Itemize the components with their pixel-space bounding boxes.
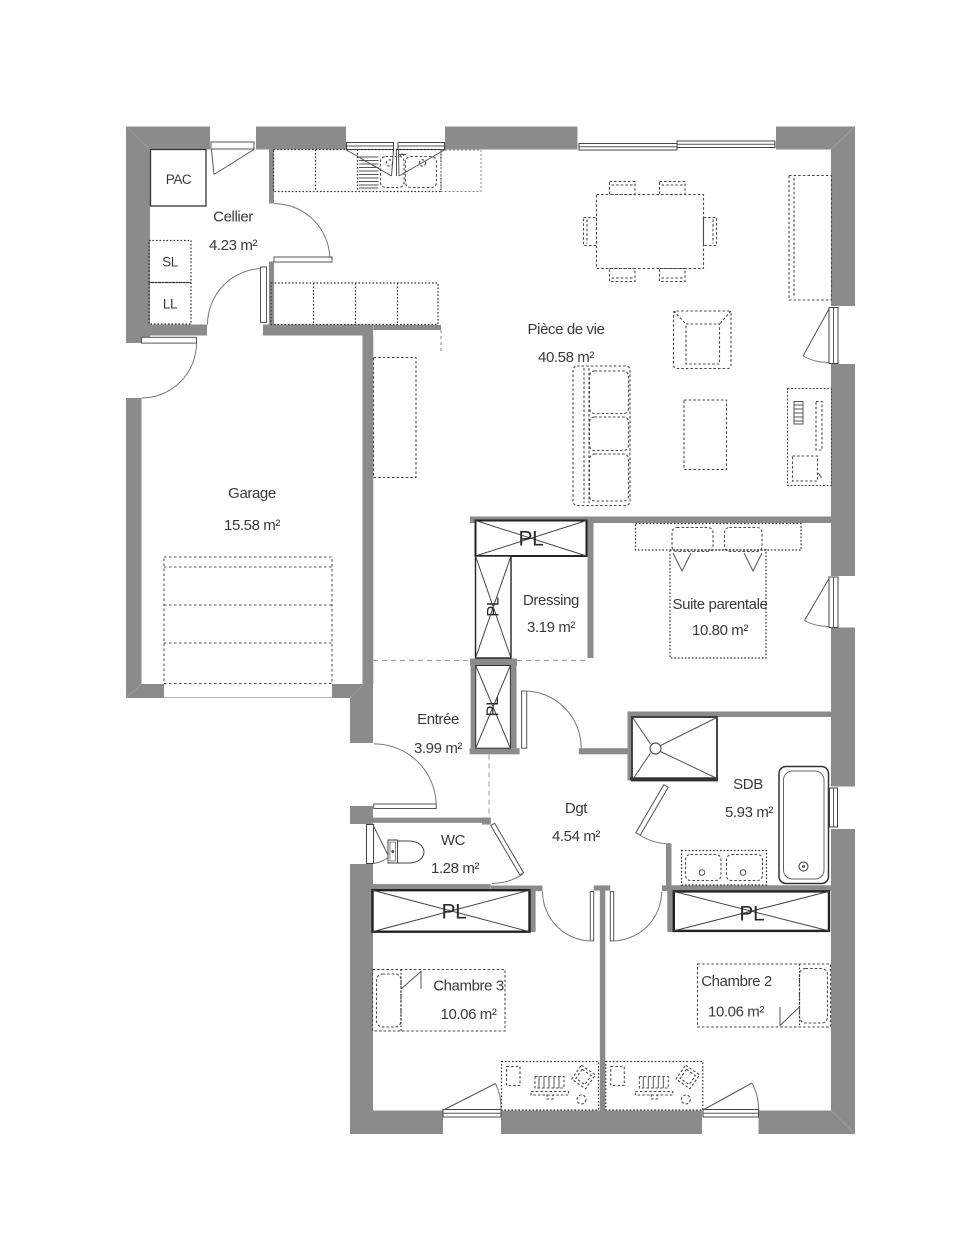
- svg-text:Chambre 3: Chambre 3: [433, 978, 504, 995]
- svg-text:4.54 m²: 4.54 m²: [552, 828, 600, 845]
- svg-text:Cellier: Cellier: [213, 209, 253, 226]
- svg-text:Suite parentale: Suite parentale: [673, 596, 768, 613]
- svg-text:PL: PL: [484, 697, 502, 717]
- svg-text:5.93 m²: 5.93 m²: [725, 804, 773, 821]
- svg-text:SL: SL: [162, 255, 179, 270]
- svg-text:PL: PL: [485, 597, 503, 617]
- svg-text:PAC: PAC: [166, 172, 192, 187]
- svg-text:Dressing: Dressing: [523, 592, 579, 609]
- svg-text:3.19 m²: 3.19 m²: [527, 619, 575, 636]
- svg-text:15.58 m²: 15.58 m²: [224, 517, 280, 534]
- svg-text:40.58 m²: 40.58 m²: [538, 349, 594, 366]
- svg-text:3.99 m²: 3.99 m²: [414, 740, 462, 757]
- svg-text:10.80 m²: 10.80 m²: [692, 622, 748, 639]
- svg-text:1.28 m²: 1.28 m²: [431, 860, 479, 877]
- svg-text:Entrée: Entrée: [417, 711, 459, 728]
- svg-text:SDB: SDB: [733, 776, 763, 793]
- svg-text:10.06 m²: 10.06 m²: [708, 1004, 764, 1021]
- svg-text:PL: PL: [442, 901, 467, 924]
- svg-text:Garage: Garage: [228, 485, 276, 502]
- svg-text:PL: PL: [519, 528, 544, 551]
- svg-text:Pièce de vie: Pièce de vie: [528, 321, 605, 338]
- svg-text:PL: PL: [739, 902, 764, 925]
- svg-text:Dgt: Dgt: [565, 800, 588, 817]
- svg-text:LL: LL: [163, 297, 178, 312]
- svg-text:4.23 m²: 4.23 m²: [209, 237, 257, 254]
- svg-text:WC: WC: [441, 832, 466, 849]
- svg-text:10.06 m²: 10.06 m²: [441, 1006, 497, 1023]
- svg-text:Chambre 2: Chambre 2: [701, 973, 772, 990]
